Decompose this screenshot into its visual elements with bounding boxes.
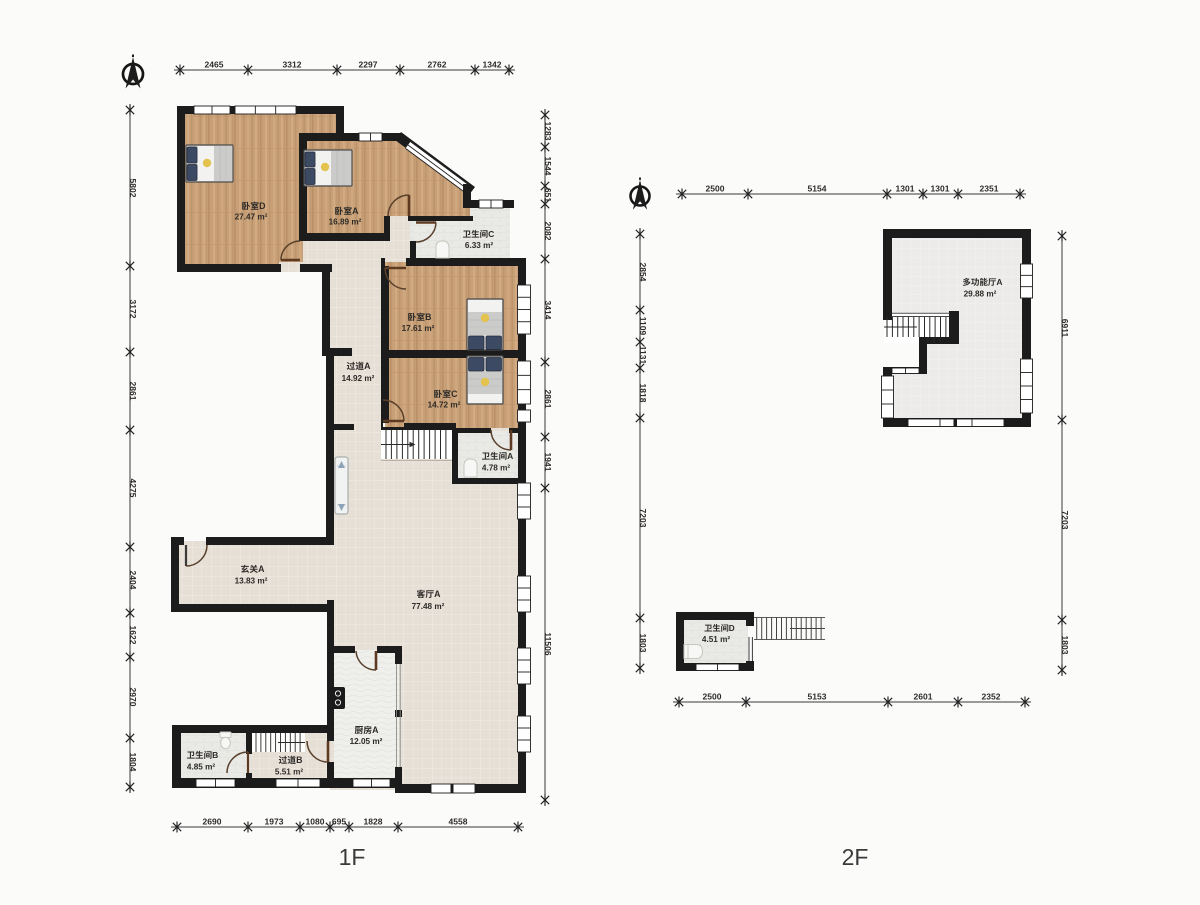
svg-text:2601: 2601: [914, 691, 933, 701]
svg-text:2F: 2F: [842, 844, 869, 870]
svg-text:2297: 2297: [359, 59, 378, 69]
svg-text:1803: 1803: [638, 634, 648, 653]
svg-text:2352: 2352: [982, 691, 1001, 701]
svg-text:651: 651: [543, 188, 553, 202]
svg-text:D: D: [259, 201, 265, 211]
svg-text:6.33 m²: 6.33 m²: [465, 241, 493, 250]
svg-text:2854: 2854: [638, 263, 648, 282]
svg-text:3312: 3312: [283, 59, 302, 69]
svg-text:14.92 m²: 14.92 m²: [342, 374, 375, 383]
svg-text:2465: 2465: [205, 59, 224, 69]
svg-text:12.05 m²: 12.05 m²: [350, 737, 383, 746]
svg-text:D: D: [729, 624, 735, 633]
svg-text:2082: 2082: [543, 222, 553, 241]
svg-text:A: A: [434, 589, 441, 599]
svg-text:27.47 m²: 27.47 m²: [235, 212, 268, 221]
svg-text:1804: 1804: [128, 753, 138, 772]
svg-text:4.51 m²: 4.51 m²: [702, 635, 730, 644]
svg-text:17.61 m²: 17.61 m²: [402, 324, 435, 333]
svg-text:7203: 7203: [638, 509, 648, 528]
svg-text:1131: 1131: [638, 346, 648, 365]
svg-text:29.88 m²: 29.88 m²: [964, 289, 997, 298]
svg-text:2861: 2861: [543, 390, 553, 409]
svg-text:3414: 3414: [543, 301, 553, 320]
svg-text:7203: 7203: [1060, 511, 1070, 530]
svg-text:A: A: [352, 206, 359, 216]
svg-text:1803: 1803: [1060, 636, 1070, 655]
svg-text:13.83 m²: 13.83 m²: [235, 576, 268, 585]
svg-text:5802: 5802: [128, 179, 138, 198]
svg-text:1342: 1342: [483, 59, 502, 69]
svg-text:B: B: [212, 750, 218, 760]
svg-text:2762: 2762: [428, 59, 447, 69]
svg-text:A: A: [507, 451, 513, 461]
svg-text:1973: 1973: [265, 816, 284, 826]
svg-text:77.48 m²: 77.48 m²: [412, 602, 445, 611]
svg-text:16.89 m²: 16.89 m²: [329, 217, 362, 226]
svg-text:1301: 1301: [931, 183, 950, 193]
svg-text:5154: 5154: [808, 183, 827, 193]
svg-text:1283: 1283: [543, 122, 553, 141]
svg-text:A: A: [364, 361, 371, 371]
svg-text:2690: 2690: [203, 816, 222, 826]
svg-text:1828: 1828: [364, 816, 383, 826]
svg-text:5153: 5153: [808, 691, 827, 701]
svg-text:2500: 2500: [706, 183, 725, 193]
svg-text:A: A: [372, 725, 379, 735]
svg-text:1941: 1941: [543, 453, 553, 472]
svg-text:2500: 2500: [703, 691, 722, 701]
svg-text:1818: 1818: [638, 384, 648, 403]
svg-text:2861: 2861: [128, 382, 138, 401]
svg-text:695: 695: [332, 816, 346, 826]
svg-text:2970: 2970: [128, 688, 138, 707]
svg-text:14.72 m²: 14.72 m²: [428, 400, 461, 409]
svg-text:1F: 1F: [339, 844, 366, 870]
svg-text:B: B: [425, 312, 431, 322]
svg-text:B: B: [296, 755, 302, 765]
svg-text:1301: 1301: [896, 183, 915, 193]
svg-text:11506: 11506: [543, 632, 553, 655]
svg-text:1622: 1622: [128, 626, 138, 645]
svg-text:1544: 1544: [543, 157, 553, 176]
svg-text:4.85 m²: 4.85 m²: [187, 762, 215, 771]
svg-text:A: A: [996, 277, 1002, 287]
svg-text:A: A: [258, 564, 265, 574]
svg-text:4.78 m²: 4.78 m²: [482, 463, 510, 472]
svg-text:1109: 1109: [638, 317, 648, 336]
svg-text:4558: 4558: [449, 816, 468, 826]
svg-text:C: C: [451, 389, 458, 399]
svg-text:5.51 m²: 5.51 m²: [275, 767, 303, 776]
svg-text:2404: 2404: [128, 571, 138, 590]
svg-text:1080: 1080: [306, 816, 325, 826]
svg-text:2351: 2351: [980, 183, 999, 193]
svg-text:3172: 3172: [128, 300, 138, 319]
svg-text:4275: 4275: [128, 479, 138, 498]
svg-text:6911: 6911: [1060, 319, 1070, 338]
svg-text:C: C: [488, 229, 494, 239]
